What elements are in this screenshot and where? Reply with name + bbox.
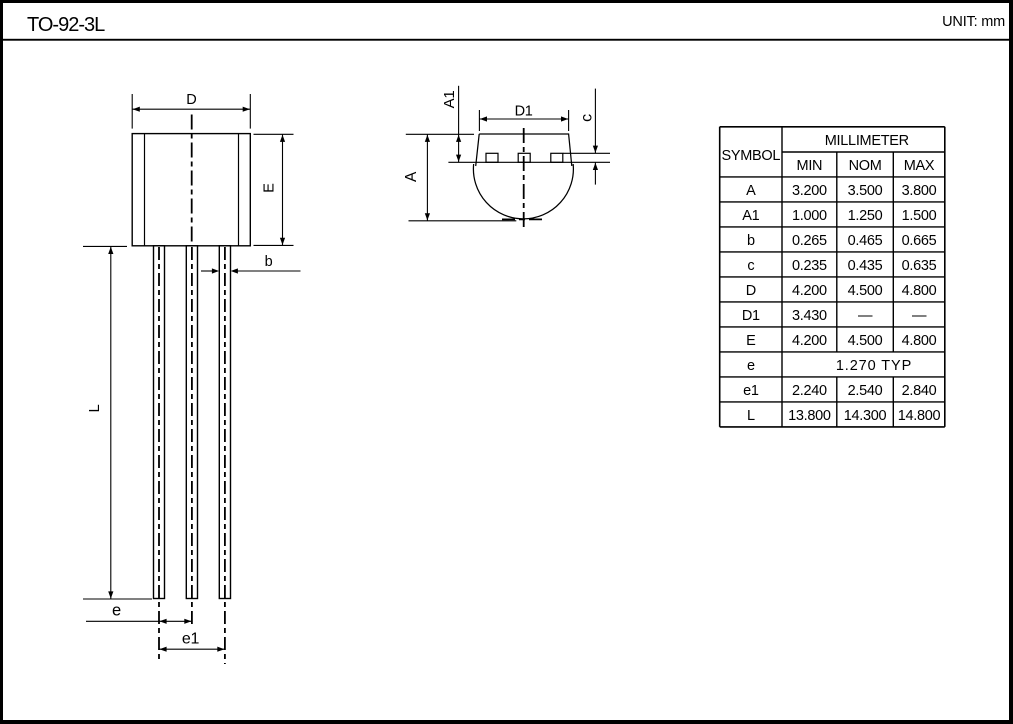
svg-text:1.250: 1.250 — [848, 208, 883, 224]
svg-text:13.800: 13.800 — [788, 408, 831, 424]
svg-text:4.800: 4.800 — [902, 333, 937, 349]
svg-text:0.265: 0.265 — [792, 233, 827, 249]
svg-text:UNIT: mm: UNIT: mm — [942, 14, 1005, 30]
svg-text:TO-92-3L: TO-92-3L — [27, 14, 105, 36]
svg-text:2.540: 2.540 — [848, 383, 883, 399]
svg-text:e1: e1 — [743, 383, 759, 399]
svg-text:NOM: NOM — [849, 158, 882, 174]
svg-text:2.840: 2.840 — [902, 383, 937, 399]
svg-text:MAX: MAX — [904, 158, 935, 174]
svg-text:4.200: 4.200 — [792, 283, 827, 299]
svg-text:A: A — [746, 183, 756, 199]
svg-text:A1: A1 — [441, 91, 458, 109]
svg-text:E: E — [261, 183, 277, 193]
svg-text:14.800: 14.800 — [898, 408, 941, 424]
svg-text:e: e — [747, 358, 755, 374]
svg-text:c: c — [747, 258, 754, 274]
svg-text:0.635: 0.635 — [902, 258, 937, 274]
svg-text:3.500: 3.500 — [848, 183, 883, 199]
svg-text:3.800: 3.800 — [902, 183, 937, 199]
svg-text:E: E — [746, 333, 756, 349]
svg-text:3.200: 3.200 — [792, 183, 827, 199]
svg-text:4.500: 4.500 — [848, 283, 883, 299]
svg-text:0.435: 0.435 — [848, 258, 883, 274]
svg-text:b: b — [747, 233, 755, 249]
svg-text:A: A — [403, 171, 420, 182]
svg-text:D1: D1 — [742, 308, 760, 324]
svg-text:3.430: 3.430 — [792, 308, 827, 324]
svg-text:e1: e1 — [182, 630, 200, 647]
svg-text:A1: A1 — [742, 208, 759, 224]
svg-text:0.235: 0.235 — [792, 258, 827, 274]
svg-text:—: — — [858, 308, 873, 324]
svg-text:4.800: 4.800 — [902, 283, 937, 299]
svg-text:MIN: MIN — [797, 158, 823, 174]
svg-text:1.000: 1.000 — [792, 208, 827, 224]
svg-text:14.300: 14.300 — [844, 408, 887, 424]
svg-text:2.240: 2.240 — [792, 383, 827, 399]
svg-text:4.500: 4.500 — [848, 333, 883, 349]
svg-text:SYMBOL: SYMBOL — [722, 148, 781, 164]
svg-text:0.665: 0.665 — [902, 233, 937, 249]
svg-text:MILLIMETER: MILLIMETER — [825, 133, 909, 149]
svg-text:1.270 TYP: 1.270 TYP — [836, 358, 912, 374]
svg-text:D: D — [186, 92, 196, 108]
svg-text:4.200: 4.200 — [792, 333, 827, 349]
svg-text:c: c — [579, 114, 596, 122]
svg-text:e: e — [112, 602, 121, 620]
svg-text:—: — — [912, 308, 927, 324]
svg-text:D: D — [746, 283, 756, 299]
svg-text:L: L — [87, 404, 103, 412]
svg-text:b: b — [265, 254, 273, 270]
svg-text:D1: D1 — [515, 104, 533, 120]
svg-text:L: L — [747, 408, 755, 424]
svg-text:1.500: 1.500 — [902, 208, 937, 224]
svg-text:0.465: 0.465 — [848, 233, 883, 249]
